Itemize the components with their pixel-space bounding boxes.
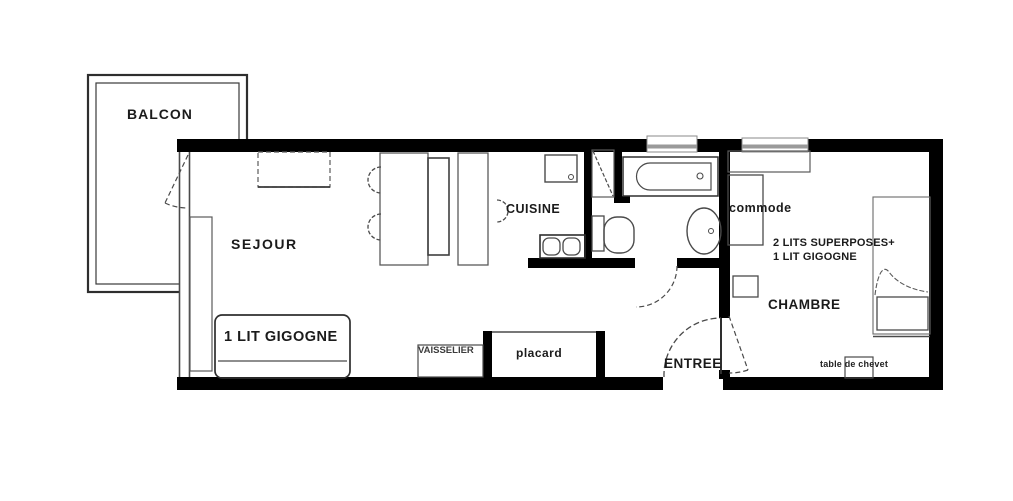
bunk-beds-label-line1: 2 LITS SUPERPOSES+ [773,238,895,249]
bunk-beds-label-line2: 1 LIT GIGOGNE [773,252,857,263]
nightstand-label: table de chevet [820,360,888,369]
placard-right-edge [596,331,605,378]
floor-plan: BALCON SEJOUR CUISINE 1 LIT GIGOGNE VAIS… [0,0,1013,501]
kitchen-bottom-wall [528,258,635,268]
placard-left-edge [483,331,492,378]
sejour-room-label: SEJOUR [231,237,298,251]
top-wall-mid [697,139,742,152]
floor-plan-drawing [0,0,1013,501]
top-wall-right [808,139,943,152]
balcon-room-label: BALCON [127,107,193,121]
vaisselier-label: VAISSELIER [418,346,474,356]
chambre-room-label: CHAMBRE [768,298,841,312]
entree-room-label: ENTREE [664,357,722,371]
right-wall [929,139,943,390]
cuisine-room-label: CUISINE [506,203,560,216]
top-wall-left [177,139,647,152]
commode-label: commode [729,202,792,215]
trundle-bed-label: 1 LIT GIGOGNE [224,330,338,345]
bathroom-left-wall [614,148,622,203]
bottom-wall-left [177,377,663,390]
placard-label: placard [516,347,562,359]
chambre-window [742,138,808,152]
bottom-wall-right [723,377,943,390]
bathroom-wall-foot [614,196,630,203]
bathroom-window [647,136,697,152]
